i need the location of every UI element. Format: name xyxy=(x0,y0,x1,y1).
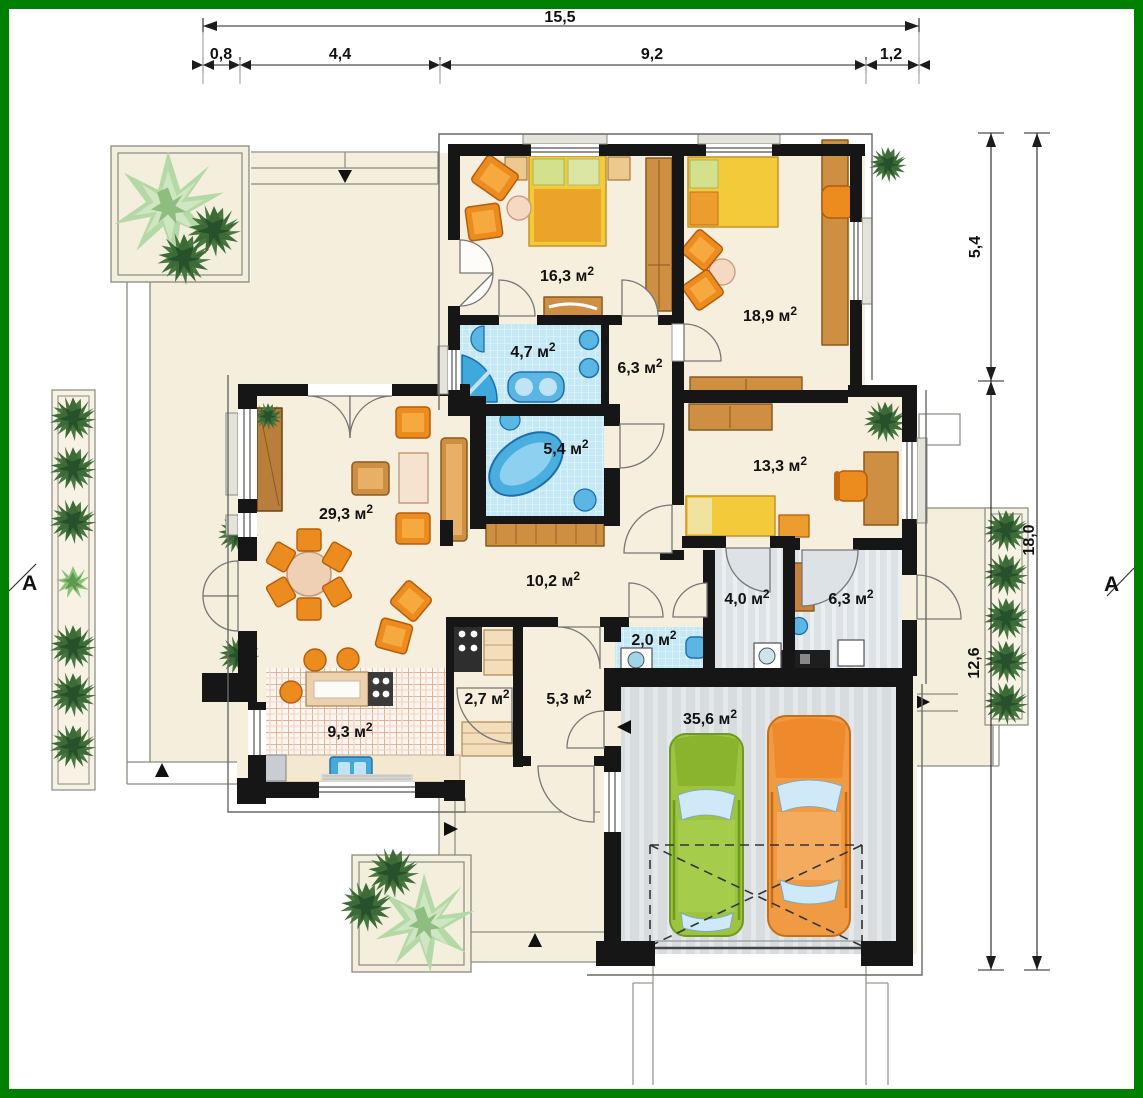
svg-text:16,3 м2: 16,3 м2 xyxy=(540,264,594,285)
svg-text:18,9 м2: 18,9 м2 xyxy=(743,304,797,325)
svg-text:12,6: 12,6 xyxy=(966,647,983,678)
svg-text:A: A xyxy=(22,572,37,595)
svg-text:1,2: 1,2 xyxy=(880,46,902,63)
svg-text:29,3 м2: 29,3 м2 xyxy=(319,502,373,523)
svg-text:4,4: 4,4 xyxy=(329,46,351,63)
svg-text:15,5: 15,5 xyxy=(544,9,575,26)
svg-text:0,8: 0,8 xyxy=(210,46,232,63)
svg-text:A: A xyxy=(1104,573,1119,596)
svg-text:5,4: 5,4 xyxy=(967,236,984,258)
svg-text:18,0: 18,0 xyxy=(1021,524,1038,555)
svg-text:35,6 м2: 35,6 м2 xyxy=(683,707,737,728)
svg-text:13,3 м2: 13,3 м2 xyxy=(753,454,807,475)
svg-text:9,2: 9,2 xyxy=(641,46,663,63)
svg-text:10,2 м2: 10,2 м2 xyxy=(526,569,580,590)
